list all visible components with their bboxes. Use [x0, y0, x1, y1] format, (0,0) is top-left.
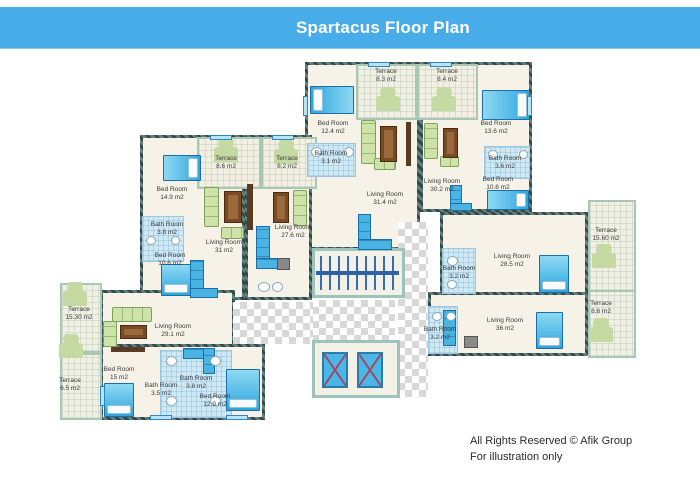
window-icon [303, 96, 308, 116]
window-icon [272, 135, 294, 140]
plant-icon [589, 318, 613, 342]
corridor-area [233, 302, 313, 344]
room-label-bathroom-7: Bath Room3.2 m2 [424, 326, 457, 341]
table-icon [380, 126, 397, 162]
room-label-terrace-4: Terrace8.2 m2 [276, 155, 298, 170]
room-label-terrace-1: Terrace8.3 m2 [375, 68, 397, 83]
bath-fixture-icon [146, 236, 156, 245]
room-label-bathroom-5: Bath Room3.8 m2 [180, 375, 213, 390]
bath-fixture-icon [432, 312, 442, 321]
disclaimer-line: For illustration only [470, 450, 632, 466]
room-label-living-3: Living Room31 m2 [206, 239, 242, 254]
floor-plan-page: Spartacus Floor Plan [0, 0, 700, 495]
sofa-icon [361, 120, 376, 164]
bed-icon [539, 255, 569, 293]
sofa-icon [424, 123, 438, 159]
page-title: Spartacus Floor Plan [0, 7, 700, 48]
kitchen-counter-icon [256, 258, 278, 269]
stove-icon [277, 258, 290, 270]
room-label-terrace-3: Terrace8.6 m2 [215, 155, 237, 170]
room-label-bathroom-2: Bath Room3.6 m2 [489, 155, 522, 170]
window-icon [430, 62, 452, 67]
room-label-terrace-2: Terrace8.4 m2 [436, 68, 458, 83]
bed-icon [104, 383, 134, 417]
room-label-terrace-8: Terrace8.6 m2 [590, 300, 612, 315]
sofa-icon [103, 321, 117, 347]
table-icon [120, 325, 147, 339]
room-label-bathroom-3: Bath Room3.8 m2 [151, 221, 184, 236]
plant-icon [376, 87, 400, 111]
room-label-living-2: Living Room30.2 m2 [424, 178, 460, 193]
room-label-terrace-6: Terrace6.5 m2 [59, 377, 81, 392]
room-label-bedroom-4: Bed Room14.9 m2 [157, 186, 188, 201]
room-label-bedroom-1: Bed Room12.4 m2 [318, 120, 349, 135]
room-label-bedroom-2: Bed Room13.6 m2 [481, 120, 512, 135]
bath-fixture-icon [171, 236, 180, 245]
elevator-icon [322, 352, 348, 388]
bed-icon [482, 90, 530, 120]
bed-icon [536, 312, 563, 349]
window-icon [210, 135, 232, 140]
sofa-icon [221, 227, 244, 239]
kitchen-counter-icon [358, 239, 392, 250]
room-label-bathroom-4: Bath Room3.5 m2 [145, 382, 178, 397]
table-icon [443, 128, 458, 158]
room-label-bedroom-3: Bed Room10.6 m2 [483, 176, 514, 191]
window-icon [527, 96, 532, 116]
elevator-icon [357, 352, 383, 388]
sofa-icon [204, 187, 219, 227]
bed-icon [226, 369, 260, 411]
bath-fixture-icon [258, 282, 270, 292]
room-label-terrace-7: Terrace15.60 m2 [592, 227, 619, 242]
title-bar: Spartacus Floor Plan [0, 7, 700, 49]
room-label-living-7: Living Room36 m2 [487, 317, 523, 332]
bath-fixture-icon [210, 356, 221, 366]
bed-icon [310, 86, 354, 114]
sofa-icon [112, 307, 152, 322]
bath-fixture-icon [272, 282, 283, 292]
bed-icon [487, 190, 529, 210]
window-icon [226, 415, 248, 420]
window-icon [368, 62, 390, 67]
corridor-area [312, 300, 395, 340]
plant-icon [432, 87, 456, 111]
stove-icon [464, 336, 478, 348]
table-icon [273, 192, 289, 223]
tv-cabinet-icon [406, 122, 411, 166]
room-label-terrace-5: Terrace15.30 m2 [65, 306, 92, 321]
room-label-bedroom-5: Bed Room10.6 m2 [155, 252, 186, 267]
room-label-living-4: Living Room27.6 m2 [275, 224, 311, 239]
window-icon [100, 386, 105, 406]
kitchen-counter-icon [190, 288, 218, 298]
room-label-living-1: Living Room31.4 m2 [367, 191, 403, 206]
bed-icon [161, 264, 191, 296]
bath-fixture-icon [166, 356, 177, 366]
bed-icon [163, 155, 201, 181]
plant-icon [592, 244, 616, 268]
stairs-icon [320, 256, 397, 290]
plant-icon [63, 282, 87, 306]
table-icon [224, 191, 242, 223]
bath-fixture-icon [166, 396, 177, 406]
sofa-icon [293, 190, 307, 226]
room-label-bedroom-6: Bed Room15 m2 [104, 366, 135, 381]
bath-fixture-icon [447, 280, 457, 289]
bath-fixture-icon [446, 312, 456, 321]
tv-cabinet-icon [111, 347, 145, 352]
room-label-bathroom-6: Bath Room3.2 m2 [443, 265, 476, 280]
copyright-line: All Rights Reserved © Afik Group [470, 434, 632, 450]
plant-icon [59, 334, 83, 358]
room-label-bathroom-1: Bath Room3.1 m2 [315, 150, 348, 165]
tv-cabinet-icon [247, 184, 253, 230]
copyright-note: All Rights Reserved © Afik Group For ill… [470, 434, 632, 465]
room-label-bedroom-7: Bed Room12.9 m2 [200, 393, 231, 408]
room-label-living-6: Living Room28.5 m2 [494, 253, 530, 268]
kitchen-counter-icon [450, 203, 472, 211]
window-icon [150, 415, 172, 420]
room-label-living-5: Living Room29.1 m2 [155, 323, 191, 338]
